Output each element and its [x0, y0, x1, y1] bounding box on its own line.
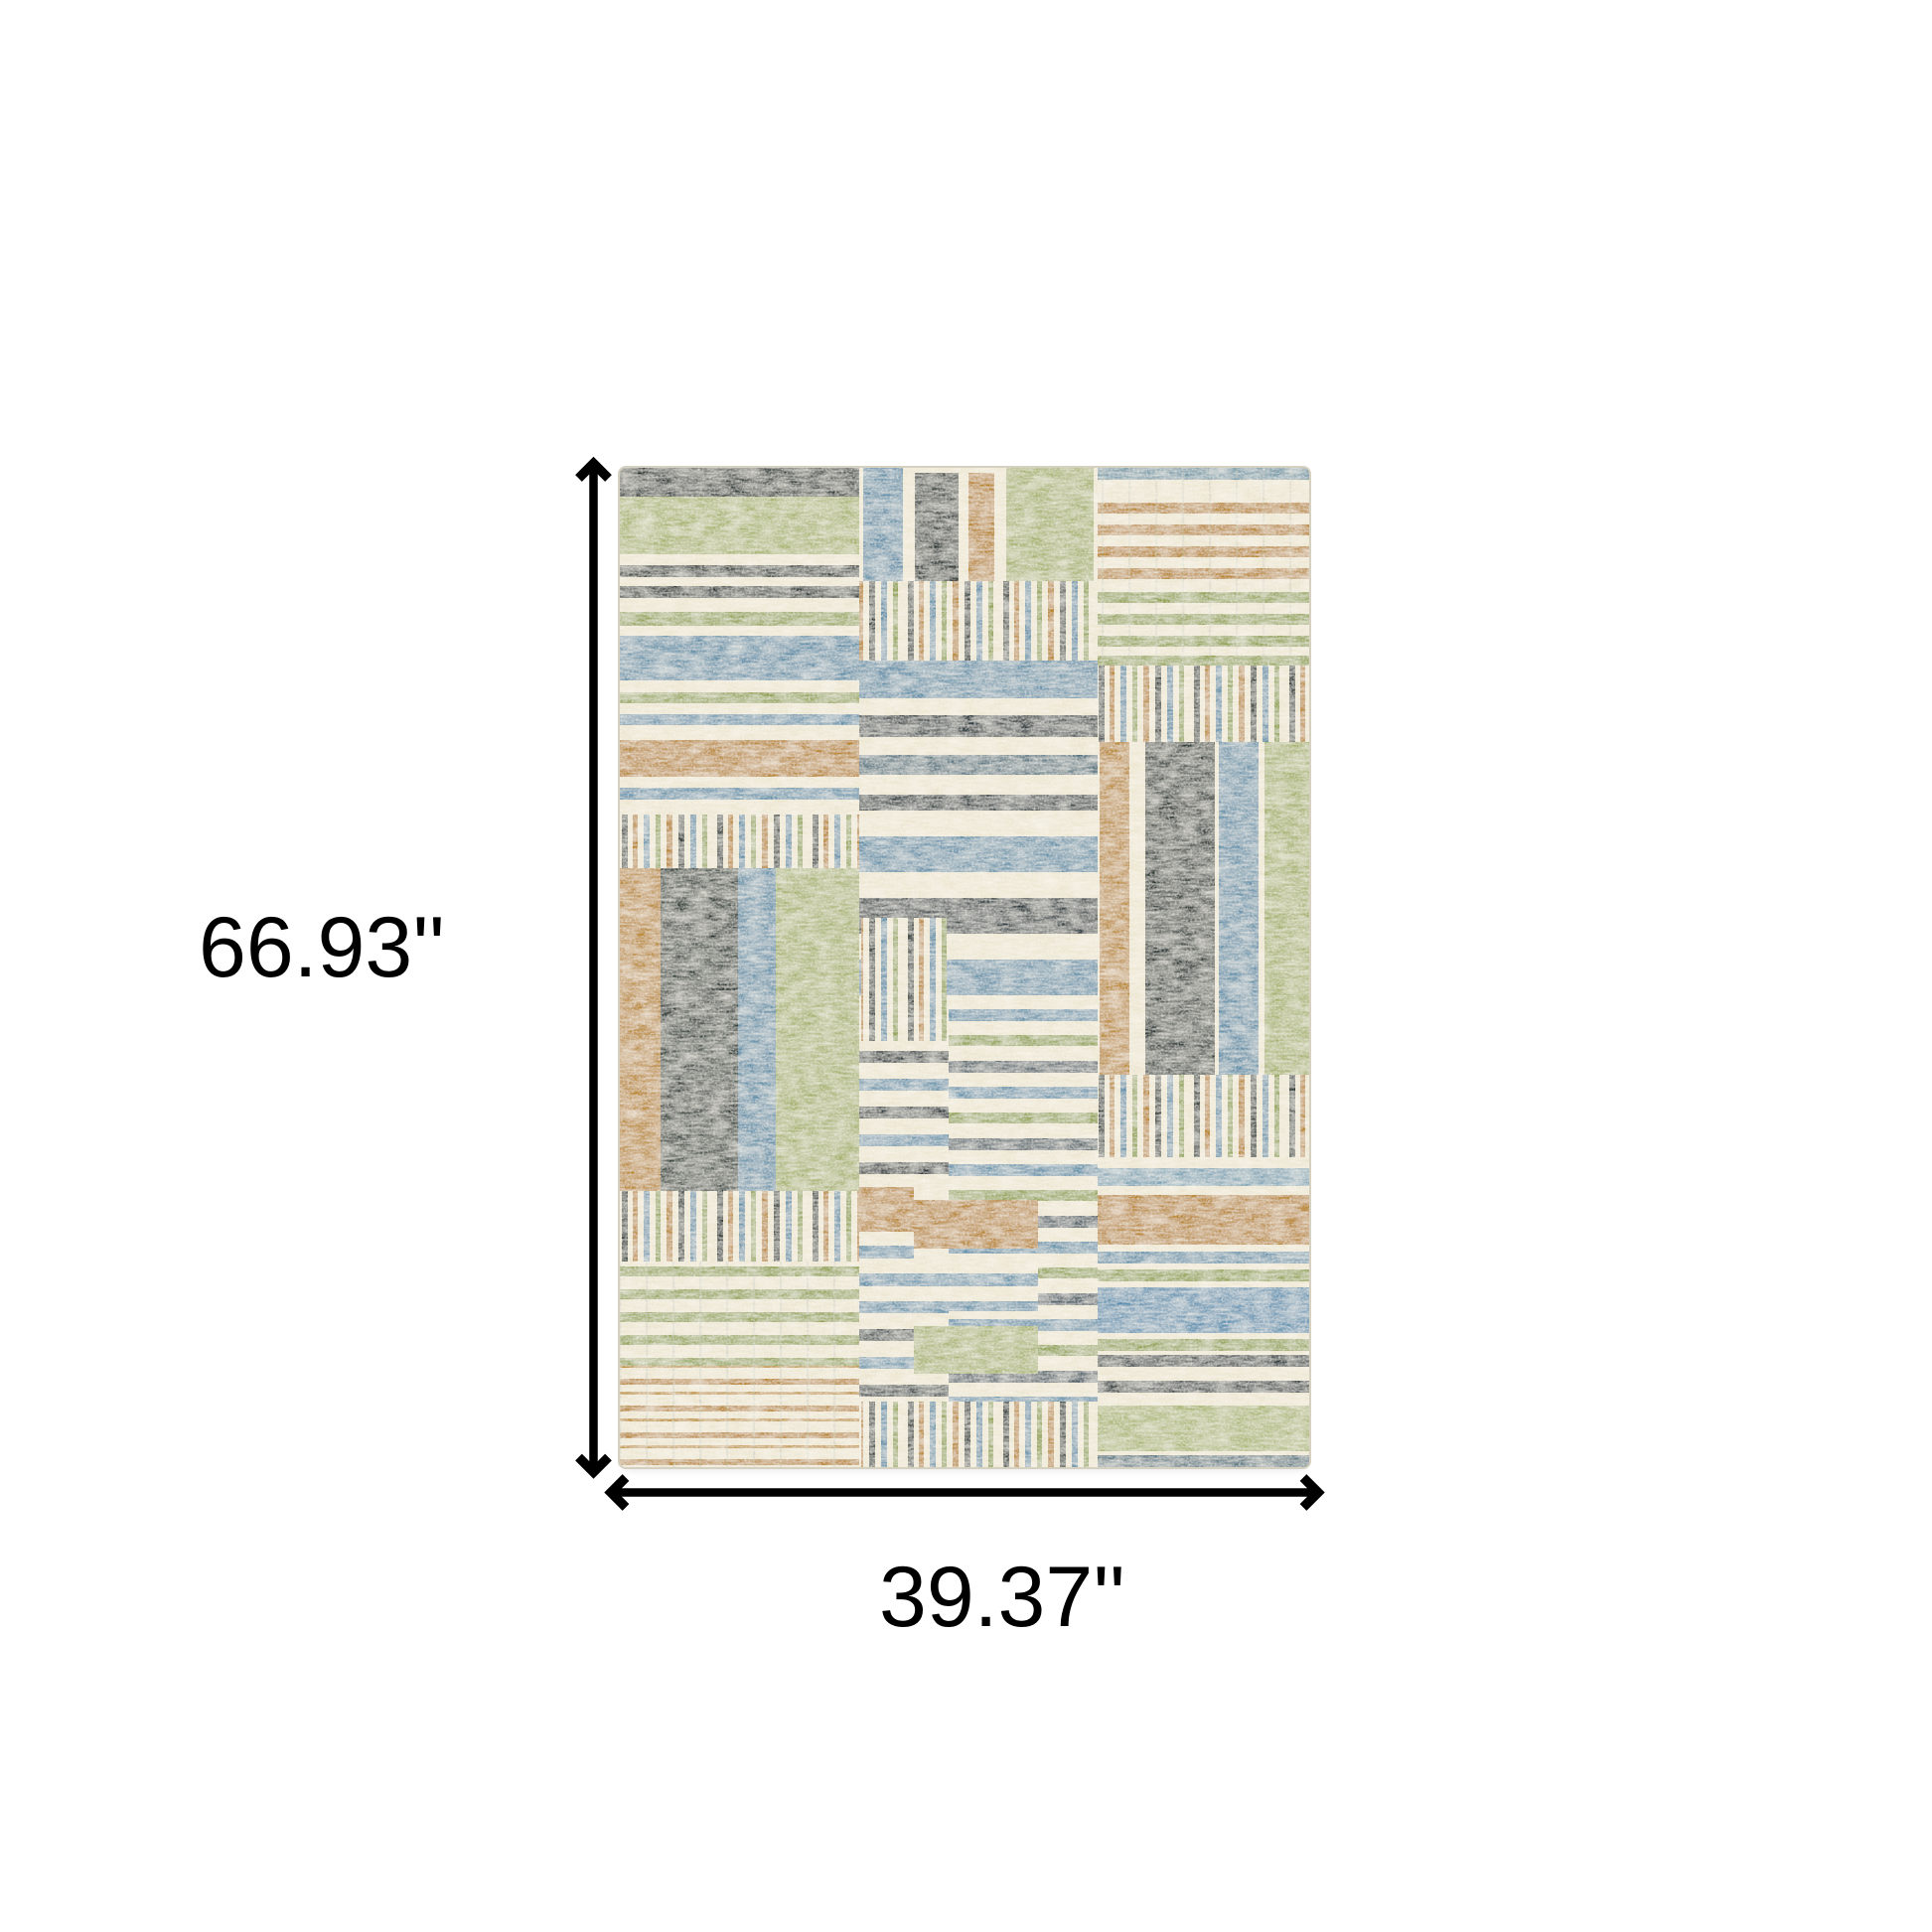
svg-text:66.93'': 66.93'': [199, 900, 445, 995]
svg-text:39.37'': 39.37'': [879, 1550, 1125, 1645]
